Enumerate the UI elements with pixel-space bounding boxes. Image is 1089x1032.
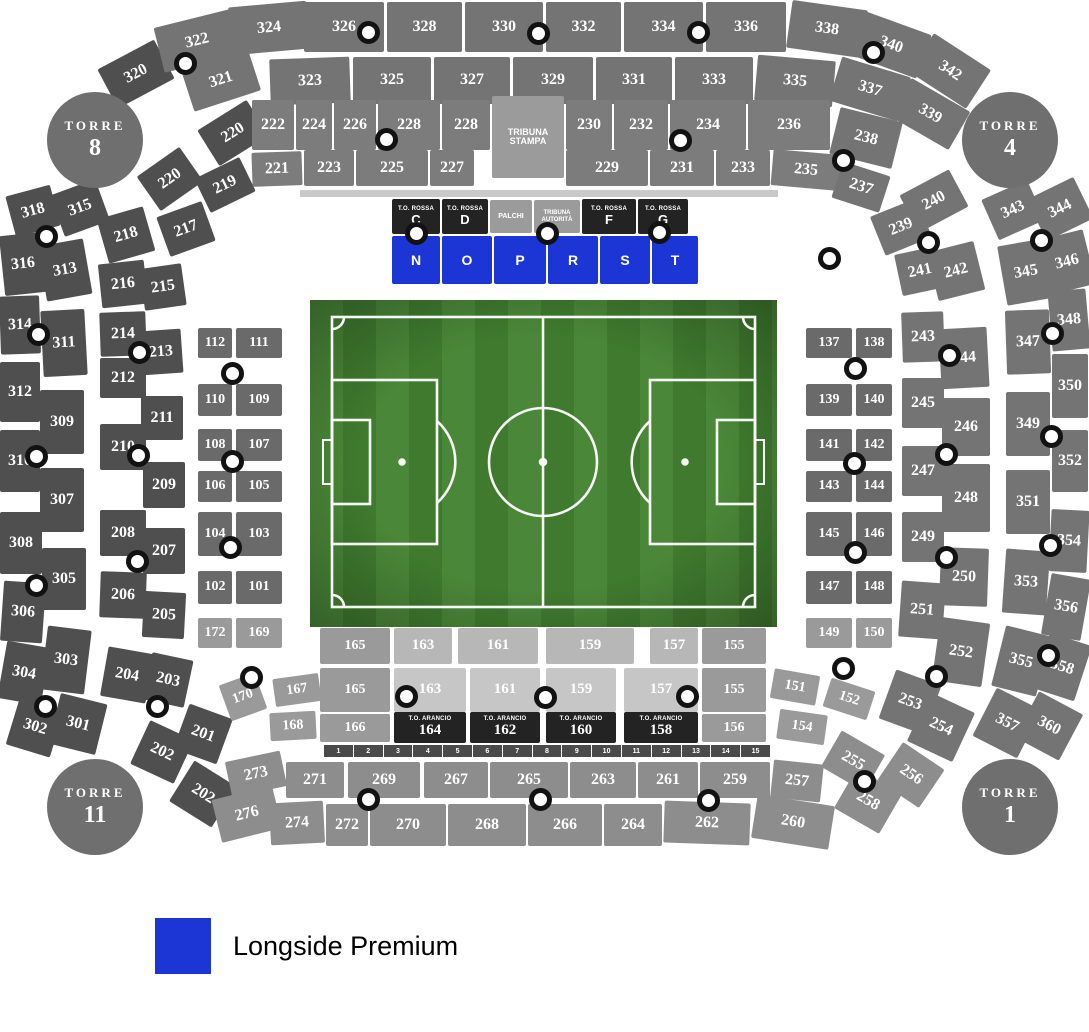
section-label: 209 xyxy=(152,477,176,493)
section-208[interactable]: 208 xyxy=(100,510,146,556)
section-350[interactable]: 350 xyxy=(1052,354,1088,418)
section-336[interactable]: 336 xyxy=(706,2,786,52)
section-144[interactable]: 144 xyxy=(856,471,892,502)
section-label: 264 xyxy=(621,817,645,833)
section-207[interactable]: 207 xyxy=(143,528,185,574)
section-221[interactable]: 221 xyxy=(251,151,302,187)
section-label: 159 xyxy=(570,682,593,697)
section-label: 347 xyxy=(1016,333,1041,350)
section-o[interactable]: O xyxy=(442,236,492,284)
torre-label: TORRE xyxy=(65,785,126,801)
section-351[interactable]: 351 xyxy=(1006,470,1050,534)
section-label: 344 xyxy=(1046,196,1075,221)
section-sublabel: T.O. ARANCIO xyxy=(560,716,603,722)
section-label: 328 xyxy=(413,19,437,35)
section-y02[interactable]: Y02 xyxy=(267,237,312,272)
section-j03[interactable]: J03 xyxy=(846,270,895,313)
section-147[interactable]: 147 xyxy=(806,571,852,604)
section-205[interactable]: 205 xyxy=(142,591,186,639)
section-274[interactable]: 274 xyxy=(269,801,325,846)
section-label: 261 xyxy=(656,772,680,788)
section-307[interactable]: 307 xyxy=(40,468,84,532)
section-label: 155 xyxy=(724,683,745,697)
section-label: 152 xyxy=(837,689,861,709)
section-sublabel: T.O. ARANCIO xyxy=(484,716,527,722)
section-label: 165 xyxy=(345,639,366,653)
gate-icon xyxy=(818,247,841,270)
section-label: 158 xyxy=(650,723,673,738)
section-label: 110 xyxy=(205,393,225,407)
section-label: 274 xyxy=(285,814,310,832)
gate-icon xyxy=(1040,425,1063,448)
section-label: D xyxy=(460,213,469,226)
section-139[interactable]: 139 xyxy=(806,384,852,416)
section-308[interactable]: 308 xyxy=(0,512,42,574)
section-label: 242 xyxy=(942,260,969,282)
section-label: 304 xyxy=(11,663,37,683)
section-159[interactable]: 159 xyxy=(546,668,616,712)
section-161[interactable]: 161 xyxy=(470,668,540,712)
torre-11: TORRE 11 xyxy=(47,759,143,855)
section-label: 166 xyxy=(345,721,366,735)
section-220[interactable]: 220 xyxy=(137,147,204,211)
section-301[interactable]: 301 xyxy=(48,693,107,755)
section-106[interactable]: 106 xyxy=(198,471,232,502)
section-label: I xyxy=(749,210,753,224)
section-z[interactable]: Z xyxy=(738,240,772,274)
section-143[interactable]: 143 xyxy=(806,471,852,502)
section-label: F xyxy=(605,213,613,226)
torre-8: TORRE 8 xyxy=(47,92,143,188)
section-label: 211 xyxy=(150,410,173,426)
section-label: 308 xyxy=(9,535,33,551)
section-328[interactable]: 328 xyxy=(387,2,462,52)
section-219[interactable]: 219 xyxy=(194,157,256,213)
section-112[interactable]: 112 xyxy=(198,328,232,358)
gate-icon xyxy=(25,574,48,597)
legend: Longside Premium xyxy=(155,918,458,974)
section-323[interactable]: 323 xyxy=(269,57,351,106)
torre-number: 4 xyxy=(1004,135,1016,162)
torre-1: TORRE 1 xyxy=(962,759,1058,855)
section-230[interactable]: 230 xyxy=(566,100,612,150)
section-label: 112 xyxy=(205,336,225,350)
section-label: 139 xyxy=(819,393,840,407)
gate-icon xyxy=(357,788,380,811)
section-label: TRIBUNA AUTORITÀ xyxy=(542,210,573,222)
section-label: 356 xyxy=(1053,597,1079,617)
section-label: L xyxy=(330,250,339,264)
section-label: 266 xyxy=(553,817,577,833)
section-label: 250 xyxy=(952,568,977,585)
section-333[interactable]: 333 xyxy=(675,57,753,104)
section-150[interactable]: 150 xyxy=(856,618,892,648)
section-j01[interactable]: J01 xyxy=(771,195,820,233)
section-label: 252 xyxy=(948,642,974,661)
section-label: 168 xyxy=(282,718,304,733)
section-label: 342 xyxy=(935,58,964,85)
section-label: 141 xyxy=(819,438,840,452)
torre-label: TORRE xyxy=(65,118,126,134)
section-241[interactable]: 241 xyxy=(894,246,946,296)
section-264[interactable]: 264 xyxy=(604,804,662,846)
gate-icon xyxy=(27,323,50,346)
gate-icon xyxy=(174,52,197,75)
section-257[interactable]: 257 xyxy=(770,759,824,802)
section-157[interactable]: 157 xyxy=(650,628,698,664)
section-label: J02 xyxy=(830,228,853,249)
section-158[interactable]: T.O. ARANCIO158 xyxy=(624,712,698,743)
section-label: X01 xyxy=(206,276,230,299)
section-155[interactable]: 155 xyxy=(702,668,766,712)
section-169[interactable]: 169 xyxy=(236,618,282,648)
section-165[interactable]: 165 xyxy=(320,628,390,664)
gate-icon xyxy=(375,128,398,151)
section-label: 146 xyxy=(864,527,885,541)
section-152[interactable]: 152 xyxy=(822,678,875,721)
section-label: 351 xyxy=(1016,494,1040,510)
section-label: 147 xyxy=(819,580,840,594)
section-label: 303 xyxy=(53,650,79,669)
section-x03[interactable]: X03 xyxy=(267,197,313,234)
section-label: 270 xyxy=(396,817,420,833)
section-140[interactable]: 140 xyxy=(856,384,892,416)
section-sublabel: T.O. ROSSA xyxy=(645,206,681,212)
section-label: 221 xyxy=(265,160,290,177)
section-label: 107 xyxy=(249,438,270,452)
section-m[interactable]: M xyxy=(354,238,390,276)
row-number: 15 xyxy=(741,745,770,757)
row-number: 10 xyxy=(592,745,621,757)
section-label: 201 xyxy=(189,722,217,746)
section-228[interactable]: 228 xyxy=(442,100,490,150)
section-305[interactable]: 305 xyxy=(42,548,86,610)
section-label: 301 xyxy=(64,713,91,735)
section-label: 103 xyxy=(249,527,270,541)
section-261[interactable]: 261 xyxy=(638,762,698,798)
section-161[interactable]: 161 xyxy=(458,628,538,664)
section-260[interactable]: 260 xyxy=(751,794,835,850)
section-label: B xyxy=(367,210,377,224)
section-p[interactable]: P xyxy=(494,236,546,284)
gate-icon xyxy=(128,341,151,364)
section-103[interactable]: 103 xyxy=(236,512,282,556)
section-156[interactable]: 156 xyxy=(702,714,766,742)
section-110[interactable]: 110 xyxy=(198,384,232,416)
section-label: 305 xyxy=(52,571,76,587)
section-h[interactable]: H xyxy=(694,202,734,232)
gate-icon xyxy=(935,443,958,466)
section-166[interactable]: 166 xyxy=(320,714,390,742)
section-248[interactable]: 248 xyxy=(942,464,990,532)
section-v[interactable]: V xyxy=(700,240,736,274)
section-309[interactable]: 309 xyxy=(40,390,84,454)
section-label: 240 xyxy=(920,188,949,214)
section-f[interactable]: T.O. ROSSAF xyxy=(582,199,636,234)
section-267[interactable]: 267 xyxy=(424,762,488,798)
section-label: 228 xyxy=(454,117,478,133)
section-label: 220 xyxy=(219,120,248,147)
section-d[interactable]: T.O. ROSSAD xyxy=(442,199,488,234)
section-217[interactable]: 217 xyxy=(156,201,215,257)
section-label: 229 xyxy=(595,160,619,176)
gate-icon xyxy=(843,452,866,475)
gate-icon xyxy=(405,222,428,245)
section-245[interactable]: 245 xyxy=(902,378,944,428)
torre-label: TORRE xyxy=(980,785,1041,801)
section-331[interactable]: 331 xyxy=(596,57,672,104)
section-label: 360 xyxy=(1035,713,1064,739)
section-label: 101 xyxy=(249,580,270,594)
section-label: 306 xyxy=(10,603,35,621)
section-163[interactable]: 163 xyxy=(394,628,452,664)
section-105[interactable]: 105 xyxy=(236,471,282,502)
section-233[interactable]: 233 xyxy=(716,150,770,186)
section-sublabel: T.O. ROSSA xyxy=(447,206,483,212)
section-311[interactable]: 311 xyxy=(40,309,87,377)
gate-icon xyxy=(127,444,150,467)
section-label: 224 xyxy=(302,117,326,133)
section-label: H xyxy=(709,210,719,224)
section-109[interactable]: 109 xyxy=(236,384,282,416)
section-label: 144 xyxy=(864,479,885,493)
section-palchi[interactable]: PALCHI xyxy=(490,200,532,233)
section-label: 326 xyxy=(332,19,356,35)
section-label: 316 xyxy=(10,255,36,274)
section-label: 215 xyxy=(150,277,176,296)
section-263[interactable]: 263 xyxy=(570,762,636,798)
section-165[interactable]: 165 xyxy=(320,668,390,712)
section-label: 259 xyxy=(723,772,747,788)
section-353[interactable]: 353 xyxy=(1002,549,1050,616)
section-label: 156 xyxy=(724,721,745,735)
section-232[interactable]: 232 xyxy=(614,100,668,150)
section-label: 247 xyxy=(911,463,935,479)
section-label: 254 xyxy=(927,715,956,740)
section-155[interactable]: 155 xyxy=(702,628,766,664)
section-label: 269 xyxy=(372,772,396,788)
section-148[interactable]: 148 xyxy=(856,571,892,604)
section-label: 108 xyxy=(205,438,226,452)
row-number: 7 xyxy=(503,745,532,757)
section-label: 172 xyxy=(205,626,226,640)
section-label: 157 xyxy=(650,682,673,697)
gate-icon xyxy=(527,22,550,45)
section-b[interactable]: B xyxy=(354,202,390,232)
section-label: 167 xyxy=(286,681,309,698)
section-label: 334 xyxy=(652,19,676,35)
section-206[interactable]: 206 xyxy=(99,571,147,619)
section-label: 160 xyxy=(570,723,593,738)
section-101[interactable]: 101 xyxy=(236,571,282,604)
section-label: 327 xyxy=(460,72,484,88)
gate-icon xyxy=(669,129,692,152)
section-224[interactable]: 224 xyxy=(296,100,332,150)
row-number: 9 xyxy=(562,745,591,757)
gate-icon xyxy=(938,344,961,367)
section-235[interactable]: 235 xyxy=(771,149,842,191)
section-164[interactable]: T.O. ARANCIO164 xyxy=(394,712,466,743)
row-number: 3 xyxy=(384,745,413,757)
section-label: 257 xyxy=(784,772,810,791)
row-number: 13 xyxy=(682,745,711,757)
section-label: 271 xyxy=(303,772,327,788)
gate-icon xyxy=(862,41,885,64)
section-211[interactable]: 211 xyxy=(141,396,183,440)
section-label: 325 xyxy=(380,72,404,88)
section-label: 273 xyxy=(243,764,270,785)
section-167[interactable]: 167 xyxy=(272,673,321,707)
section-l[interactable]: L xyxy=(316,238,352,276)
gate-icon xyxy=(219,536,242,559)
section-138[interactable]: 138 xyxy=(856,328,892,358)
section-137[interactable]: 137 xyxy=(806,328,852,358)
section-r[interactable]: R xyxy=(548,236,598,284)
section-356[interactable]: 356 xyxy=(1041,573,1089,641)
section-label: 138 xyxy=(864,336,885,350)
gate-icon xyxy=(221,362,244,385)
section-162[interactable]: T.O. ARANCIO162 xyxy=(470,712,540,743)
section-label: K01 xyxy=(787,248,812,266)
section-label: 208 xyxy=(111,525,135,541)
section-324[interactable]: 324 xyxy=(228,1,310,56)
legend-label: Longside Premium xyxy=(233,931,458,962)
section-label: 324 xyxy=(256,19,281,37)
section-209[interactable]: 209 xyxy=(143,462,185,508)
section-label: 355 xyxy=(1007,650,1034,672)
section-label: R xyxy=(568,253,578,267)
section-label: 223 xyxy=(317,160,341,176)
section-label: 161 xyxy=(494,682,517,697)
section-label: 343 xyxy=(999,198,1028,223)
section-149[interactable]: 149 xyxy=(806,618,852,648)
section-x02[interactable]: X02 xyxy=(220,216,268,259)
section-271[interactable]: 271 xyxy=(286,762,344,798)
section-label: 202 xyxy=(148,740,177,765)
section-label: 206 xyxy=(111,586,136,603)
section-222[interactable]: 222 xyxy=(252,100,294,150)
row-number: 6 xyxy=(473,745,502,757)
section-349[interactable]: 349 xyxy=(1006,392,1050,456)
gate-icon xyxy=(25,445,48,468)
section-332[interactable]: 332 xyxy=(546,2,621,52)
section-label: 330 xyxy=(492,19,516,35)
section-label: 309 xyxy=(50,414,74,430)
gate-icon xyxy=(126,550,149,573)
section-231[interactable]: 231 xyxy=(650,150,714,186)
section-label: X03 xyxy=(278,207,302,225)
section-label: 205 xyxy=(152,606,177,624)
section-label: 323 xyxy=(298,72,323,89)
section-154[interactable]: 154 xyxy=(776,709,828,745)
gate-icon xyxy=(1030,229,1053,252)
gate-icon xyxy=(844,357,867,380)
gate-icon xyxy=(917,231,940,254)
section-159[interactable]: 159 xyxy=(546,628,634,664)
section-label: J03 xyxy=(859,281,882,301)
section-label: 222 xyxy=(261,117,285,133)
gate-icon xyxy=(34,695,57,718)
section-225[interactable]: 225 xyxy=(356,150,428,186)
section-223[interactable]: 223 xyxy=(304,150,354,186)
section-111[interactable]: 111 xyxy=(236,328,282,358)
section-168[interactable]: 168 xyxy=(269,711,316,741)
section-label: 265 xyxy=(517,772,541,788)
gate-icon xyxy=(357,21,380,44)
section-label: 248 xyxy=(954,490,978,506)
section-s[interactable]: S xyxy=(600,236,650,284)
section-y01[interactable]: Y01 xyxy=(239,269,289,307)
section-151[interactable]: 151 xyxy=(770,668,821,706)
section-172[interactable]: 172 xyxy=(198,618,232,648)
section-label: 233 xyxy=(731,160,755,176)
section-tribuna-stampa[interactable]: TRIBUNA STAMPA xyxy=(492,96,564,178)
section-label: 336 xyxy=(734,19,758,35)
stadium-map: TORRE 8 TORRE 4 TORRE 11 TORRE 1 xyxy=(0,0,1089,1032)
section-label: M xyxy=(366,250,378,264)
section-label: 143 xyxy=(819,479,840,493)
section-325[interactable]: 325 xyxy=(353,57,431,104)
section-236[interactable]: 236 xyxy=(748,100,830,150)
row-number: 4 xyxy=(413,745,442,757)
football-pitch xyxy=(310,300,777,627)
section-268[interactable]: 268 xyxy=(448,804,526,846)
gate-icon xyxy=(844,541,867,564)
torre-number: 8 xyxy=(89,135,101,162)
section-label: 331 xyxy=(622,72,646,88)
section-label: 232 xyxy=(629,117,653,133)
section-label: S xyxy=(620,253,629,267)
section-229[interactable]: 229 xyxy=(566,150,648,186)
section-label: 219 xyxy=(211,172,240,197)
section-label: 246 xyxy=(954,419,978,435)
section-a[interactable]: A xyxy=(316,202,352,232)
section-312[interactable]: 312 xyxy=(0,362,40,422)
section-x01[interactable]: X01 xyxy=(194,264,242,309)
section-label: 151 xyxy=(783,678,806,696)
torre-label: TORRE xyxy=(980,118,1041,134)
section-label: 251 xyxy=(909,601,934,619)
section-sublabel: T.O. ARANCIO xyxy=(409,716,452,722)
section-226[interactable]: 226 xyxy=(334,100,376,150)
section-label: 260 xyxy=(780,812,806,832)
section-label: 226 xyxy=(343,117,367,133)
section-label: 220 xyxy=(155,165,184,192)
section-label: 333 xyxy=(702,72,726,88)
section-label: 307 xyxy=(50,492,74,508)
section-102[interactable]: 102 xyxy=(198,571,232,604)
section-label: 238 xyxy=(852,127,879,149)
section-label: 243 xyxy=(911,328,936,345)
section-215[interactable]: 215 xyxy=(139,263,186,310)
section-227[interactable]: 227 xyxy=(430,150,474,186)
section-272[interactable]: 272 xyxy=(326,804,368,846)
section-label: 241 xyxy=(907,261,934,282)
section-label: K02 xyxy=(815,278,840,301)
section-label: Z xyxy=(751,250,760,264)
section-212[interactable]: 212 xyxy=(100,358,146,398)
section-sublabel: T.O. ROSSA xyxy=(591,206,627,212)
section-label: 234 xyxy=(696,117,720,133)
section-i[interactable]: I xyxy=(736,202,766,232)
section-160[interactable]: T.O. ARANCIO160 xyxy=(546,712,616,743)
section-270[interactable]: 270 xyxy=(370,804,446,846)
section-label: 163 xyxy=(412,638,435,653)
section-label: X02 xyxy=(232,226,257,247)
section-label: 313 xyxy=(52,260,78,280)
section-label: 214 xyxy=(111,325,136,342)
section-265[interactable]: 265 xyxy=(490,762,568,798)
